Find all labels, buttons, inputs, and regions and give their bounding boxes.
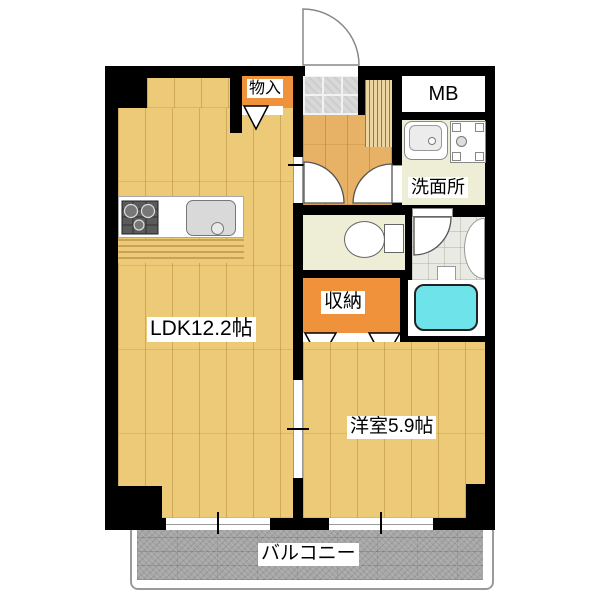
mb-room: MB: [402, 76, 485, 112]
washer-corner-br: [475, 152, 484, 161]
kitchen-sink-faucet-icon: [211, 222, 224, 235]
window-tick-western: [380, 512, 382, 534]
washer-corner-bl: [452, 152, 461, 161]
washroom-label: 洗面所: [408, 177, 468, 198]
storage-label: 物入: [247, 79, 283, 98]
window-tick-ldk: [217, 512, 219, 534]
washer-corner-tl: [452, 123, 461, 132]
entrance-tile: [303, 76, 358, 115]
washer-drain-icon: [456, 136, 467, 147]
closet-label: 収納: [321, 291, 365, 314]
shoe-cabinet-slats: [365, 80, 392, 147]
floor-plan: バルコニー 物入 MB 洗面所: [0, 0, 600, 600]
bathroom-door-arc-icon: [413, 216, 453, 256]
washroom-door-arc-icon: [352, 162, 393, 204]
storage-door-triangle-icon: [243, 105, 269, 131]
washer-corner-tr: [475, 123, 484, 132]
toilet-tank: [384, 224, 404, 253]
bathtub: [414, 284, 478, 331]
ldk-floor-upper: [147, 78, 230, 108]
washroom-door-opening: [392, 165, 402, 203]
mb-label: MB: [429, 83, 459, 106]
hall-door-arc-icon: [303, 160, 346, 204]
sliding-door-tick: [287, 428, 309, 430]
ldk-floor: [118, 108, 293, 518]
toilet-bowl: [344, 221, 385, 258]
vanity-faucet-dot-icon: [428, 137, 436, 145]
ldk-label: LDK12.2帖: [147, 317, 256, 342]
kitchen-counter-front: [118, 239, 244, 263]
corner-pillar-bottom-left: [105, 486, 162, 530]
western-room-label: 洋室5.9帖: [347, 416, 436, 439]
storage-side-wall: [230, 66, 242, 133]
stove-icon: [121, 200, 159, 235]
vanity-basin: [409, 125, 442, 151]
balcony-label: バルコニー: [258, 543, 359, 566]
corner-pillar-bottom-right: [466, 484, 495, 530]
entrance-door-arc-icon: [300, 8, 362, 68]
